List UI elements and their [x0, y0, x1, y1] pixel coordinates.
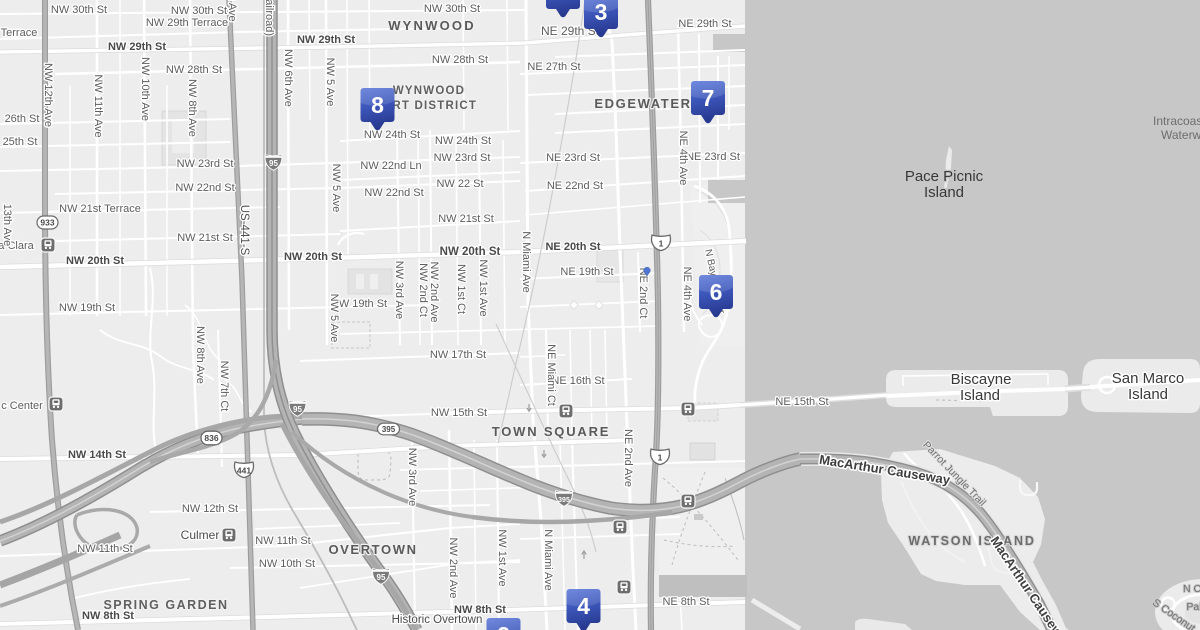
svg-text:NW 12th Ave: NW 12th Ave: [42, 63, 54, 127]
svg-text:NW 22nd St: NW 22nd St: [175, 182, 234, 194]
svg-text:NW 21st St: NW 21st St: [177, 232, 233, 244]
svg-text:NW 1st Ct: NW 1st Ct: [455, 264, 467, 314]
svg-text:NW 1st Ave: NW 1st Ave: [477, 259, 489, 316]
svg-text:US-441-S: US-441-S: [238, 205, 250, 256]
svg-text:Island: Island: [960, 387, 1000, 404]
svg-text:NW 24th St: NW 24th St: [435, 135, 491, 147]
svg-text:NE 22nd St: NE 22nd St: [547, 180, 603, 192]
svg-text:NE 19th St: NE 19th St: [560, 266, 613, 278]
svg-text:ART DISTRICT: ART DISTRICT: [383, 100, 477, 112]
svg-text:NW 3rd Ave: NW 3rd Ave: [393, 261, 405, 320]
svg-text:NW 5 Ave: NW 5 Ave: [328, 294, 340, 343]
svg-text:NW 2nd Ave: NW 2nd Ave: [447, 538, 459, 599]
svg-text:Terrace: Terrace: [1, 27, 38, 39]
svg-text:N C: N C: [1183, 583, 1200, 595]
svg-text:836: 836: [204, 433, 218, 443]
svg-text:SPRING GARDEN: SPRING GARDEN: [103, 598, 228, 612]
svg-text:NW 28th St: NW 28th St: [432, 54, 488, 66]
svg-text:395: 395: [558, 497, 570, 504]
svg-text:NE 20th St: NE 20th St: [545, 241, 600, 253]
svg-text:25th St: 25th St: [3, 136, 38, 148]
svg-text:NW 5 Ave: NW 5 Ave: [324, 58, 336, 107]
svg-text:1: 1: [659, 239, 664, 249]
svg-text:NE 23rd St: NE 23rd St: [686, 151, 740, 163]
svg-text:NE 29th St: NE 29th St: [678, 18, 731, 30]
svg-text:NE 15th St: NE 15th St: [775, 396, 828, 408]
svg-text:NW 8th Ave: NW 8th Ave: [186, 79, 198, 137]
svg-text:NW 14th St: NW 14th St: [68, 449, 126, 461]
svg-text:NE Miami Ct: NE Miami Ct: [545, 344, 557, 406]
svg-text:WYNWOOD: WYNWOOD: [393, 85, 465, 97]
svg-text:NW 20th St: NW 20th St: [66, 255, 124, 267]
svg-text:WATSON ISLAND: WATSON ISLAND: [908, 534, 1035, 548]
svg-text:95: 95: [269, 159, 278, 168]
svg-text:WYNWOOD: WYNWOOD: [388, 18, 476, 33]
svg-text:NW 28th St: NW 28th St: [166, 64, 222, 76]
svg-text:95: 95: [377, 573, 386, 582]
svg-text:NW 29th St: NW 29th St: [297, 34, 355, 46]
svg-text:Island: Island: [1128, 386, 1168, 403]
svg-text:N Miami Ave: N Miami Ave: [542, 529, 554, 591]
svg-text:933: 933: [40, 218, 54, 228]
svg-text:NW 12th St: NW 12th St: [182, 503, 238, 515]
svg-text:c Center: c Center: [1, 400, 43, 412]
svg-text:Culmer: Culmer: [181, 528, 220, 542]
svg-text:NE 27th St: NE 27th St: [527, 61, 580, 73]
svg-text:NW 2nd Ave: NW 2nd Ave: [428, 262, 440, 323]
svg-text:395: 395: [382, 425, 396, 434]
svg-text:Intracoastal: Intracoastal: [1153, 114, 1200, 128]
svg-text:NE 4th Ave: NE 4th Ave: [681, 267, 693, 322]
svg-text:San Marco: San Marco: [1112, 370, 1185, 387]
svg-text:NW 11th Ave: NW 11th Ave: [92, 74, 104, 137]
svg-text:NW 22nd Ln: NW 22nd Ln: [360, 160, 421, 172]
svg-text:h Ave: h Ave: [226, 0, 238, 22]
svg-text:NW 10th Ave: NW 10th Ave: [139, 57, 151, 121]
svg-text:NW 21st St: NW 21st St: [438, 213, 494, 225]
svg-text:6: 6: [710, 279, 723, 305]
svg-text:NW 23rd St: NW 23rd St: [177, 158, 234, 170]
svg-text:NW 20th St: NW 20th St: [284, 251, 342, 263]
svg-text:NW 22 St: NW 22 St: [436, 178, 483, 190]
svg-text:Waterway: Waterway: [1161, 128, 1200, 142]
svg-text:NW 17th St: NW 17th St: [430, 349, 486, 361]
svg-text:441: 441: [237, 466, 251, 476]
svg-text:95: 95: [293, 405, 302, 414]
svg-text:Historic Overtown: Historic Overtown: [392, 614, 483, 626]
svg-text:NW 6th Ave: NW 6th Ave: [282, 49, 294, 107]
svg-text:NW 1st Ave: NW 1st Ave: [496, 529, 508, 586]
svg-text:NW 29th St: NW 29th St: [108, 41, 166, 53]
svg-text:NE 16th St: NE 16th St: [551, 375, 604, 387]
svg-text:NW 19th St: NW 19th St: [59, 302, 115, 314]
svg-text:26th St: 26th St: [5, 113, 40, 125]
svg-text:NW 7th Ct: NW 7th Ct: [218, 361, 230, 412]
svg-text:NW 11th St: NW 11th St: [255, 535, 310, 547]
svg-text:NW 22nd St: NW 22nd St: [364, 187, 423, 199]
svg-text:NE 23rd St: NE 23rd St: [546, 152, 600, 164]
svg-text:NW 8th Ave: NW 8th Ave: [194, 326, 206, 384]
svg-text:NW 30th St: NW 30th St: [424, 3, 480, 15]
svg-text:13th Ave: 13th Ave: [1, 204, 13, 247]
svg-text:TOWN SQUARE: TOWN SQUARE: [492, 424, 611, 439]
svg-text:NW 29th Terrace: NW 29th Terrace: [146, 17, 228, 29]
svg-text:8: 8: [371, 92, 384, 118]
svg-text:OVERTOWN: OVERTOWN: [328, 542, 417, 557]
svg-text:NW 10th St: NW 10th St: [259, 558, 315, 570]
svg-text:1: 1: [658, 453, 663, 463]
svg-text:4: 4: [577, 593, 590, 619]
svg-text:NW 2nd Ct: NW 2nd Ct: [417, 263, 429, 317]
svg-text:NW 20th St: NW 20th St: [440, 246, 501, 258]
svg-text:NW 15th St: NW 15th St: [431, 407, 487, 419]
svg-text:NE 2nd Ave: NE 2nd Ave: [622, 429, 634, 487]
svg-text:NW 30th St: NW 30th St: [51, 4, 107, 16]
svg-text:Pal: Pal: [1186, 601, 1200, 613]
svg-text:NW 23rd St: NW 23rd St: [434, 152, 491, 164]
svg-text:NE 4th Ave: NE 4th Ave: [677, 131, 689, 186]
svg-text:NW 11th St: NW 11th St: [77, 543, 132, 555]
svg-text:NW 30th St: NW 30th St: [171, 5, 227, 17]
svg-text:EDGEWATER: EDGEWATER: [594, 96, 691, 111]
svg-text:3: 3: [595, 0, 608, 25]
svg-text:NW 5 Ave: NW 5 Ave: [330, 164, 342, 213]
svg-text:NE 8th St: NE 8th St: [662, 596, 709, 608]
svg-text:NW 21st Terrace: NW 21st Terrace: [59, 203, 141, 215]
svg-text:Pace Picnic: Pace Picnic: [905, 168, 984, 185]
svg-text:2: 2: [497, 622, 510, 630]
svg-text:N Miami Ave: N Miami Ave: [520, 231, 532, 293]
svg-text:(railroad): (railroad): [263, 0, 275, 36]
svg-text:Biscayne: Biscayne: [951, 371, 1012, 388]
svg-text:NW 24th St: NW 24th St: [364, 129, 420, 141]
svg-text:7: 7: [702, 85, 715, 111]
svg-text:NW 3rd Ave: NW 3rd Ave: [406, 448, 418, 507]
svg-text:Island: Island: [924, 184, 964, 201]
